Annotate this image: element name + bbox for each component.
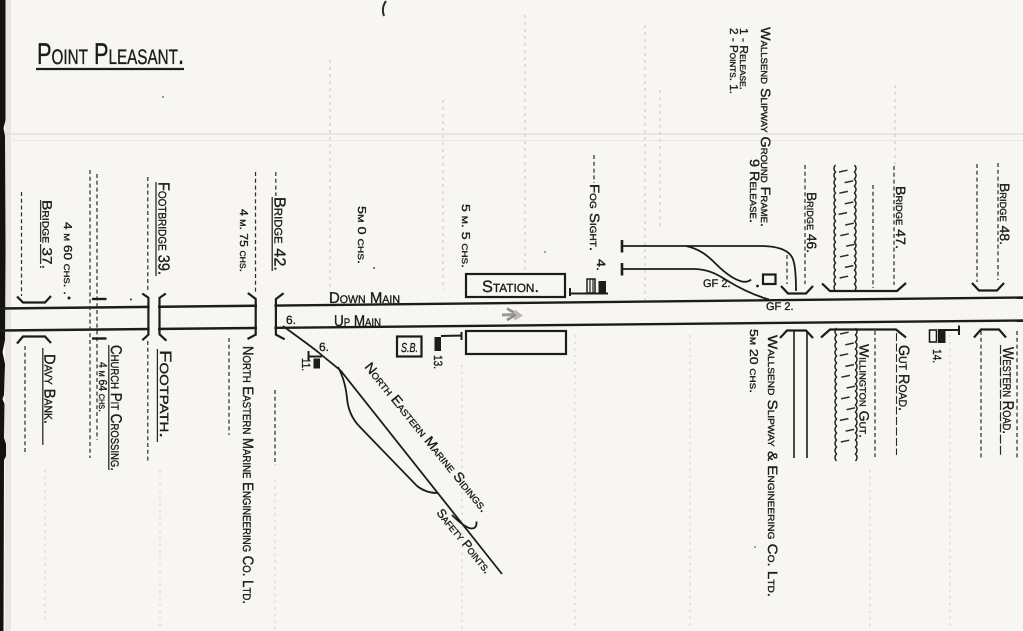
svg-text:4 m 64 chs.: 4 m 64 chs. (96, 362, 108, 412)
svg-text:North Eastern Marine Engineeri: North Eastern Marine Engineering Co. Ltd… (239, 346, 256, 604)
svg-text:GF 2.: GF 2. (703, 278, 731, 290)
svg-text:4 m 60 chs. .: 4 m 60 chs. . (61, 222, 73, 295)
svg-text:14.: 14. (930, 349, 944, 363)
svg-text:4.: 4. (594, 259, 608, 271)
svg-text:5 m. 5 chs.: 5 m. 5 chs. (459, 204, 471, 268)
svg-text:9 Release.: 9 Release. (747, 159, 762, 223)
svg-text:1 - Release.: 1 - Release. (737, 28, 749, 90)
svg-text:6.: 6. (286, 313, 296, 327)
svg-text:4 m. 75 chs.: 4 m. 75 chs. (237, 209, 249, 272)
svg-text:Western Road.: Western Road. (999, 347, 1016, 434)
svg-text:Wallsend Slipway & Engineering: Wallsend Slipway & Engineering Co. Ltd. (765, 335, 780, 597)
svg-text:5m 0 chs.: 5m 0 chs. (355, 206, 367, 264)
svg-text:Bridge 48.: Bridge 48. (997, 183, 1012, 245)
svg-text:Fog Sight.: Fog Sight. (587, 184, 602, 251)
svg-text:6.: 6. (319, 340, 329, 354)
svg-text:Footpath.: Footpath. (156, 350, 174, 438)
svg-text:Bridge 47.: Bridge 47. (893, 186, 908, 249)
svg-text:GF 2.: GF 2. (766, 301, 794, 313)
svg-text:13.: 13. (431, 355, 445, 369)
svg-text:Station.: Station. (482, 278, 539, 296)
svg-text:Bridge 42.: Bridge 42. (271, 197, 288, 271)
svg-text:Church Pit Crossing.: Church Pit Crossing. (107, 345, 124, 471)
svg-text:S.B.: S.B. (401, 340, 418, 355)
svg-text:Footbridge 39.: Footbridge 39. (155, 182, 172, 275)
svg-text:Willington Gut.: Willington Gut. (857, 344, 872, 438)
svg-text:Gut Road.: Gut Road. (895, 345, 912, 411)
svg-text:5m 20 chs.: 5m 20 chs. (747, 329, 759, 393)
svg-text:Bridge 37.: Bridge 37. (40, 200, 55, 269)
svg-text:Point Pleasant.: Point Pleasant. (37, 38, 184, 71)
svg-text:Down Main: Down Main (329, 290, 400, 307)
svg-text:Up Main: Up Main (334, 313, 381, 330)
svg-text:Bridge 46.: Bridge 46. (804, 192, 819, 253)
svg-text:11.: 11. (299, 358, 313, 371)
